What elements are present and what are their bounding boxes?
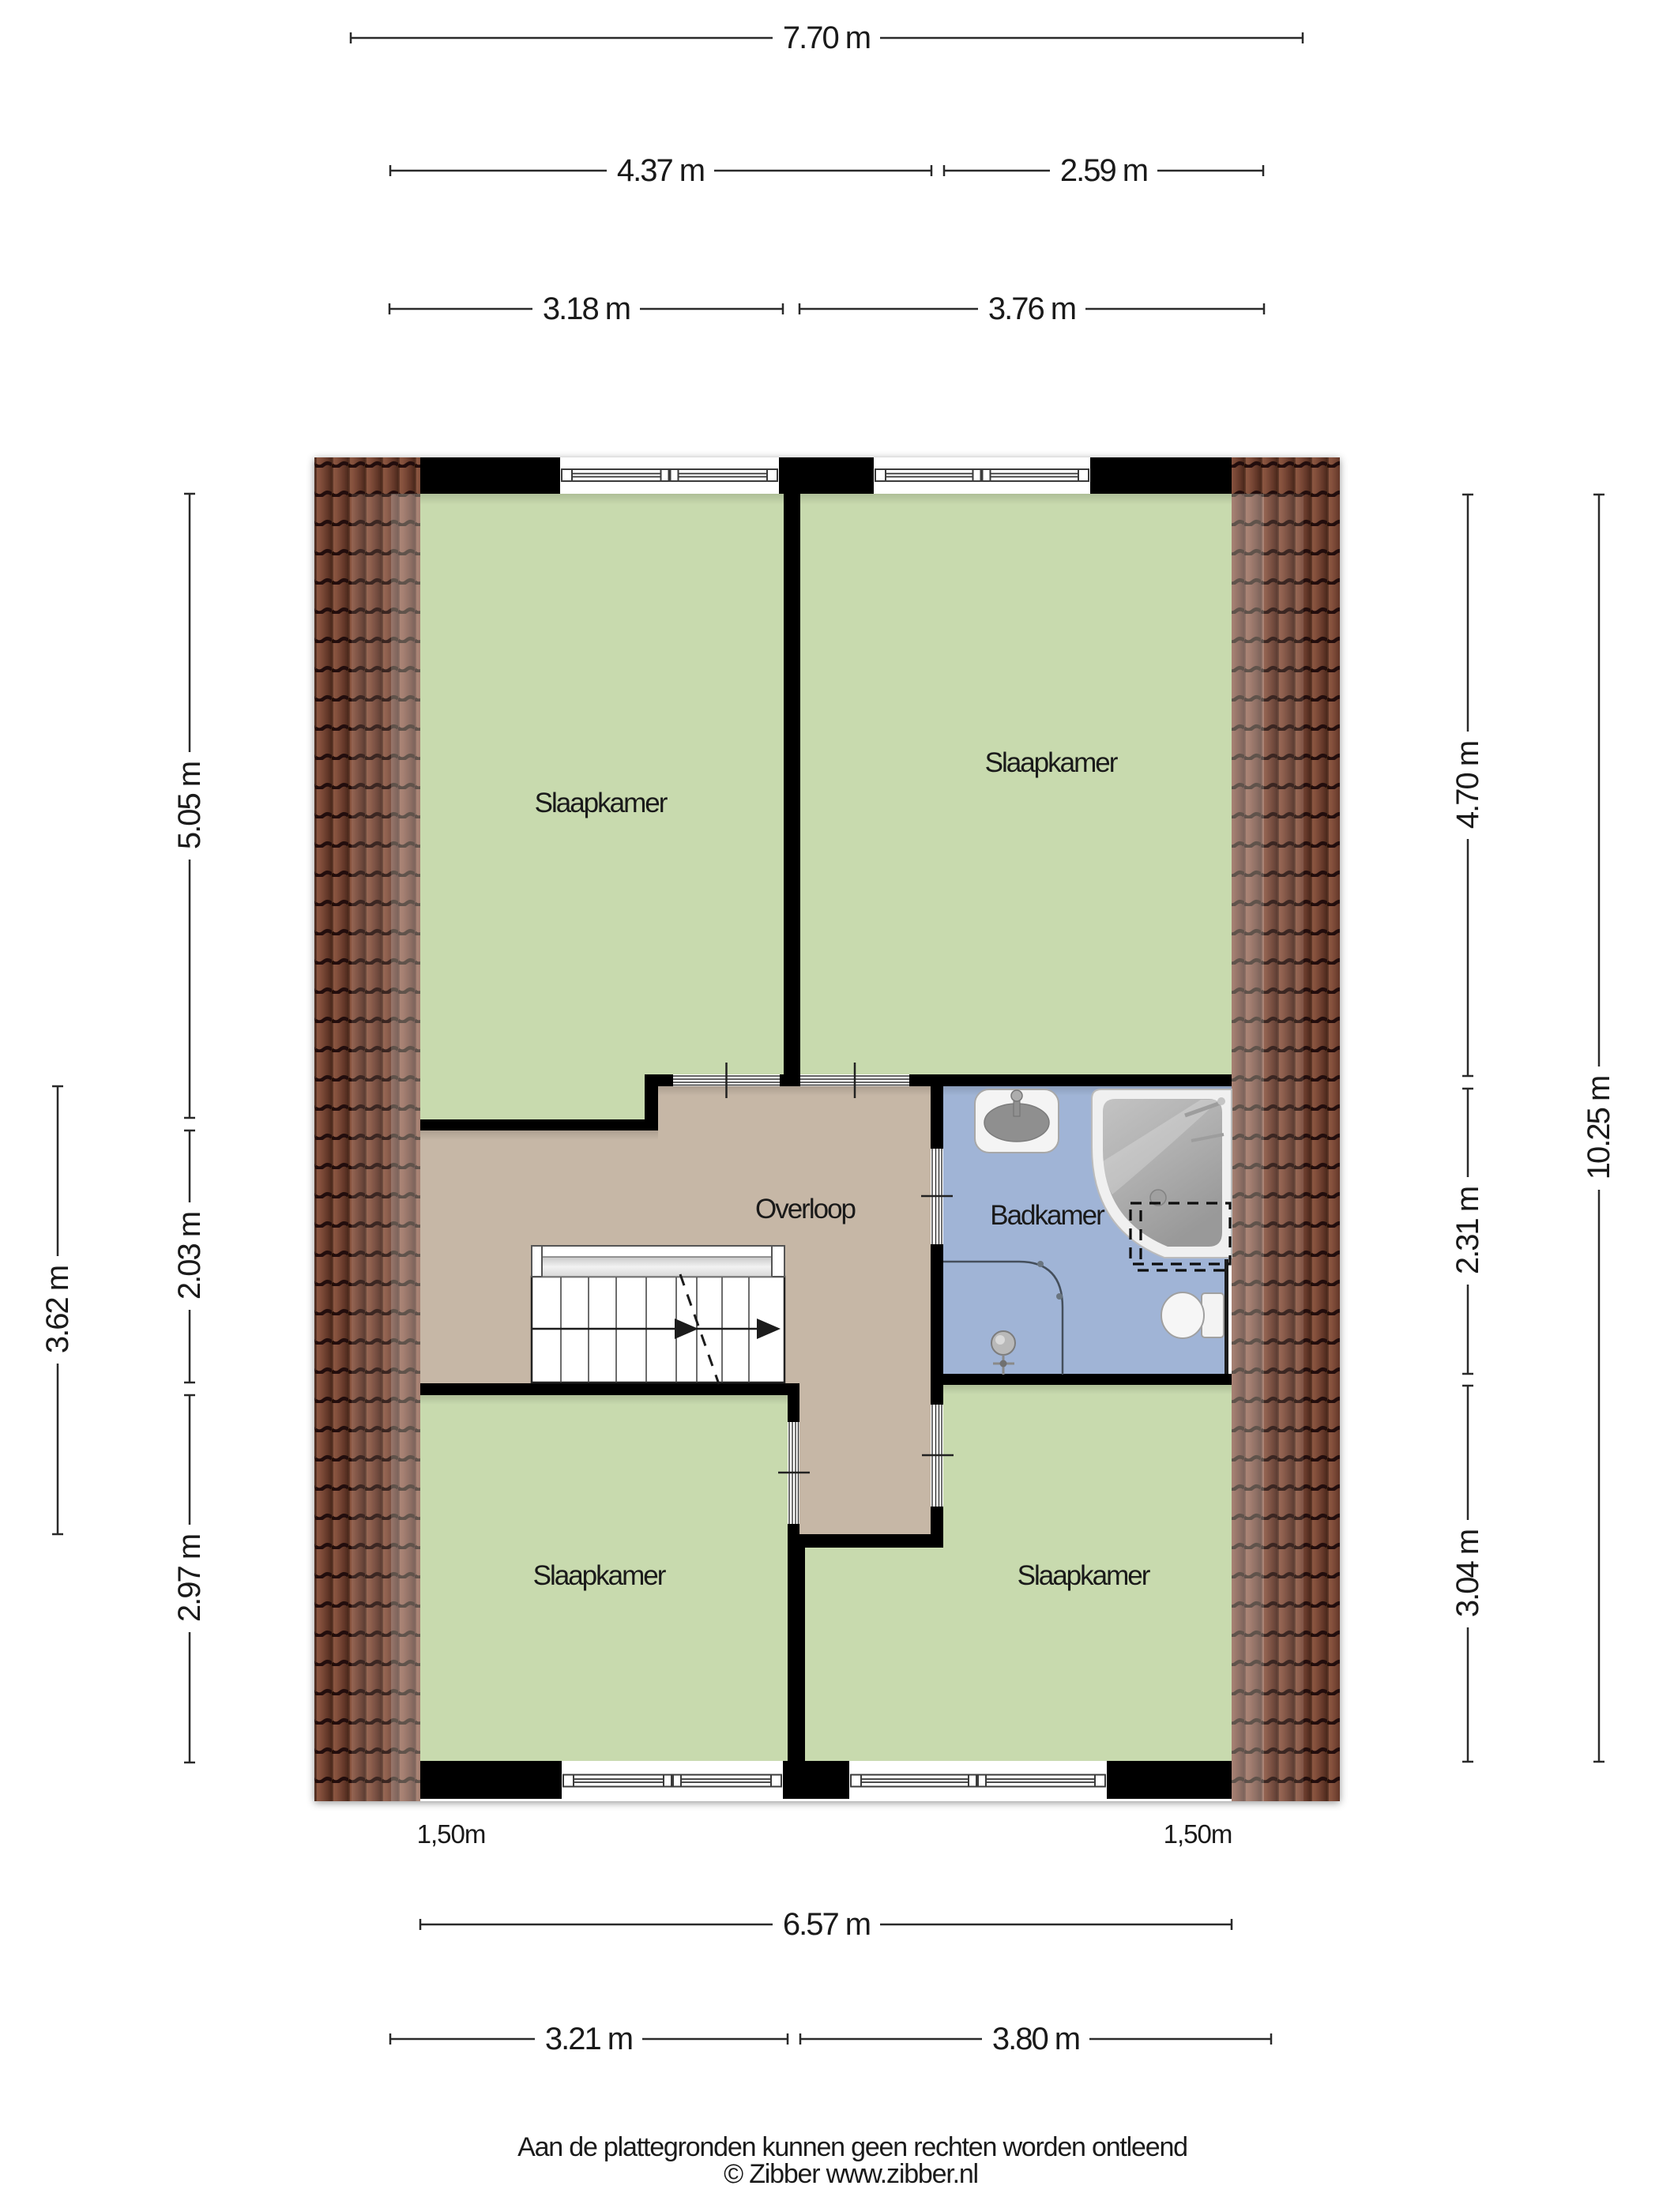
svg-text:Aan de plattegronden kunnen ge: Aan de plattegronden kunnen geen rechten… xyxy=(517,2132,1187,2162)
svg-text:2.31 m: 2.31 m xyxy=(1450,1187,1485,1274)
svg-text:1,50m: 1,50m xyxy=(417,1819,486,1849)
svg-text:1,50m: 1,50m xyxy=(1164,1819,1232,1849)
svg-text:7.70 m: 7.70 m xyxy=(783,21,870,55)
svg-text:Badkamer: Badkamer xyxy=(990,1200,1105,1231)
svg-text:3.62 m: 3.62 m xyxy=(40,1266,75,1353)
svg-text:5.05 m: 5.05 m xyxy=(172,762,207,849)
svg-text:2.97 m: 2.97 m xyxy=(172,1535,207,1622)
svg-text:3.21 m: 3.21 m xyxy=(545,2022,632,2056)
svg-text:Slaapkamer: Slaapkamer xyxy=(533,1560,667,1591)
svg-text:Overloop: Overloop xyxy=(755,1194,856,1224)
svg-text:4.37 m: 4.37 m xyxy=(617,153,704,188)
svg-text:3.18 m: 3.18 m xyxy=(543,292,630,326)
svg-text:3.80 m: 3.80 m xyxy=(992,2022,1079,2056)
svg-text:3.04 m: 3.04 m xyxy=(1450,1530,1485,1617)
svg-text:Slaapkamer: Slaapkamer xyxy=(1018,1560,1151,1591)
svg-text:6.57 m: 6.57 m xyxy=(783,1907,870,1942)
svg-text:2.59 m: 2.59 m xyxy=(1060,153,1147,188)
svg-text:3.76 m: 3.76 m xyxy=(988,292,1075,326)
svg-text:Slaapkamer: Slaapkamer xyxy=(535,788,668,818)
svg-text:4.70 m: 4.70 m xyxy=(1450,742,1485,829)
svg-text:Slaapkamer: Slaapkamer xyxy=(985,747,1119,778)
svg-text:2.03 m: 2.03 m xyxy=(172,1213,207,1300)
svg-text:10.25 m: 10.25 m xyxy=(1582,1077,1616,1180)
svg-text:© Zibber www.zibber.nl: © Zibber www.zibber.nl xyxy=(724,2159,978,2189)
